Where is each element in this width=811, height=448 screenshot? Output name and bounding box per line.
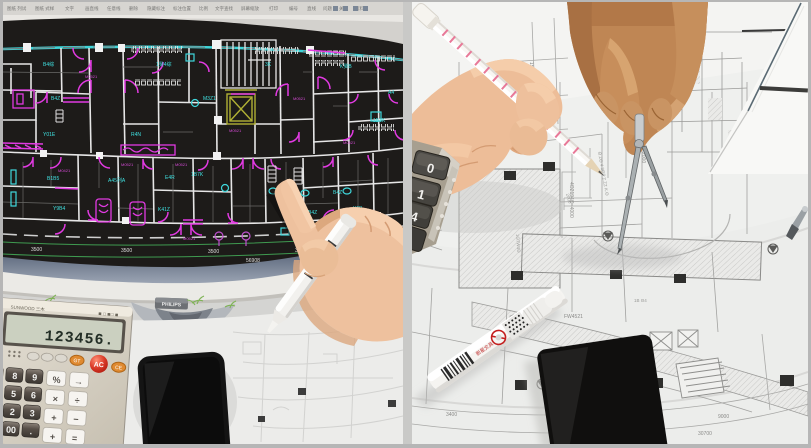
- svg-text:K41Z: K41Z: [158, 207, 170, 213]
- svg-text:E4R: E4R: [165, 175, 175, 181]
- svg-text:PHILIPS: PHILIPS: [162, 302, 182, 309]
- svg-text:3400: 3400: [446, 412, 457, 418]
- svg-text:文字: 文字: [65, 5, 74, 12]
- svg-text:文字查找: 文字查找: [215, 5, 233, 12]
- svg-text:M0521: M0521: [293, 96, 306, 101]
- svg-text:隐藏标注: 隐藏标注: [147, 5, 165, 12]
- svg-text:M0521: M0521: [85, 74, 98, 79]
- svg-text:3500: 3500: [121, 248, 132, 254]
- svg-text:3K: 3K: [265, 62, 272, 68]
- svg-text:M0521: M0521: [175, 162, 188, 167]
- svg-text:M0521: M0521: [121, 162, 134, 167]
- svg-text:00: 00: [6, 425, 17, 436]
- svg-text:B1B5: B1B5: [47, 176, 59, 182]
- svg-text:打印: 打印: [269, 5, 278, 12]
- svg-text:3500: 3500: [31, 247, 42, 253]
- svg-text:1B Θ4: 1B Θ4: [634, 298, 647, 303]
- svg-text:M0521: M0521: [229, 128, 242, 133]
- svg-text:÷: ÷: [74, 395, 80, 405]
- svg-text:Y9B4: Y9B4: [53, 206, 65, 212]
- svg-text:×: ×: [52, 394, 58, 404]
- svg-text:M0521: M0521: [343, 140, 356, 145]
- svg-text:30700: 30700: [698, 431, 712, 437]
- svg-text:9: 9: [32, 372, 38, 382]
- svg-text:=: =: [72, 433, 78, 443]
- svg-text:1B7K: 1B7K: [191, 172, 204, 178]
- svg-text:1癸4综: 1癸4综: [156, 61, 172, 68]
- svg-text:M0521: M0521: [183, 236, 196, 241]
- svg-text:3500: 3500: [208, 249, 219, 255]
- svg-text:A4: A4: [388, 90, 394, 96]
- svg-text:直线: 直线: [307, 5, 316, 11]
- svg-text:2: 2: [9, 407, 15, 417]
- svg-text:%: %: [52, 375, 61, 386]
- svg-text:比例: 比例: [199, 5, 208, 12]
- svg-text:Y01E: Y01E: [43, 132, 56, 138]
- svg-text:编号: 编号: [289, 5, 298, 12]
- svg-text:B4Z: B4Z: [333, 190, 342, 196]
- svg-text:屏幕缩放: 屏幕缩放: [241, 5, 259, 12]
- svg-text:→: →: [74, 376, 84, 387]
- svg-text:A45列A: A45列A: [108, 177, 126, 184]
- svg-text:AC: AC: [93, 361, 104, 369]
- svg-text:3: 3: [29, 408, 35, 418]
- svg-text:+: +: [50, 432, 56, 442]
- svg-text:图纸 式样: 图纸 式样: [35, 5, 55, 12]
- svg-text:M0421: M0421: [58, 168, 71, 173]
- svg-text:图纸 列试: 图纸 列试: [7, 5, 27, 12]
- svg-text:CE: CE: [115, 365, 123, 372]
- svg-text:−: −: [73, 414, 79, 424]
- svg-text:任意线: 任意线: [107, 5, 121, 12]
- svg-text:6: 6: [31, 390, 37, 400]
- svg-text:GT: GT: [73, 358, 80, 364]
- svg-text:标注位置: 标注位置: [173, 5, 191, 12]
- svg-text:问题: 问题: [323, 5, 332, 12]
- svg-text:R4N: R4N: [131, 132, 141, 138]
- svg-text:8: 8: [12, 371, 18, 381]
- svg-text:画直线: 画直线: [85, 5, 99, 12]
- svg-text:M3Z1: M3Z1: [203, 96, 216, 102]
- svg-text:FW4521: FW4521: [564, 314, 583, 320]
- svg-text:B4综: B4综: [43, 61, 54, 68]
- svg-text:+: +: [51, 413, 57, 423]
- svg-text:9000: 9000: [718, 414, 729, 420]
- svg-text:5: 5: [11, 389, 17, 399]
- svg-text:删除: 删除: [129, 5, 138, 12]
- svg-text:B4Z: B4Z: [51, 96, 60, 102]
